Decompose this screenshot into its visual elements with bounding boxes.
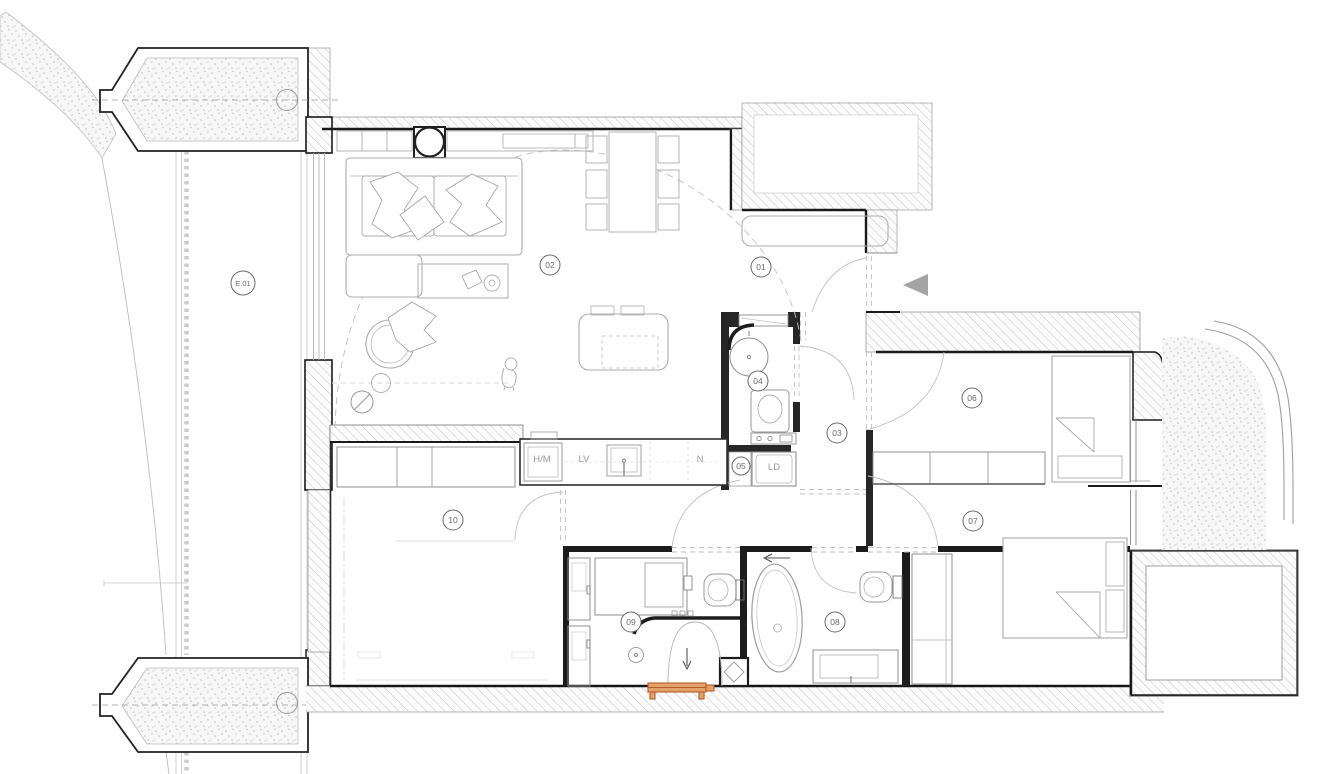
- pier-top: [92, 48, 338, 152]
- room-label-08: 08: [825, 612, 845, 632]
- svg-text:04: 04: [753, 376, 763, 386]
- bathtub: [749, 563, 805, 673]
- floor-drain-09: [629, 648, 644, 663]
- entry-door: [812, 256, 872, 312]
- room-07-furniture: [912, 538, 1127, 684]
- vanity-09: [595, 558, 687, 615]
- basin-04: [730, 338, 768, 376]
- label-ld: LD: [768, 462, 780, 473]
- room-label-04: 04: [748, 371, 768, 391]
- round-column: [415, 128, 444, 157]
- coffee-table: [418, 264, 508, 298]
- room-label-e01: E.01: [231, 271, 255, 295]
- shower-curtain-arc: [668, 622, 722, 686]
- window-living-west: [314, 153, 325, 360]
- entrance-arrow-icon: [903, 274, 928, 296]
- bath-09-fixtures: [568, 558, 748, 686]
- door-bath-08: [811, 548, 856, 594]
- garden: [1162, 321, 1293, 550]
- wardrobe-10: [337, 447, 515, 487]
- room-label-02: 02: [540, 255, 560, 275]
- sink-09: [645, 563, 683, 607]
- door-room-09: [672, 480, 740, 552]
- svg-text:06: 06: [967, 393, 977, 403]
- svg-text:08: 08: [830, 617, 840, 627]
- corridor-thresholds: [800, 312, 866, 494]
- svg-text:10: 10: [448, 515, 458, 525]
- room-label-01: 01: [751, 257, 771, 277]
- room-label-07: 07: [963, 511, 983, 531]
- wall-shelves: [337, 131, 593, 151]
- site-arc-lower: [166, 752, 169, 774]
- furniture: [337, 127, 1130, 699]
- label-lv: LV: [579, 454, 591, 465]
- dog-figure: [502, 358, 517, 391]
- label-hm: H/M: [533, 454, 551, 465]
- toilet-04: [751, 390, 789, 432]
- room-06-furniture: [873, 356, 1130, 484]
- bed-07: [1003, 538, 1127, 638]
- bed-06: [1052, 356, 1130, 482]
- door-room-07: [868, 476, 938, 552]
- label-n: N: [697, 454, 704, 465]
- dining-set: [586, 132, 679, 232]
- door-room-06: [866, 352, 944, 430]
- door-room-10: [515, 490, 566, 540]
- svg-text:01: 01: [756, 262, 766, 272]
- svg-text:E.01: E.01: [235, 279, 250, 288]
- door-bath-04: [795, 346, 855, 400]
- site-stipple-band: [0, 12, 116, 158]
- room-label-05: 05: [732, 457, 750, 475]
- svg-text:02: 02: [545, 260, 555, 270]
- room-label-06: 06: [962, 388, 982, 408]
- swivel-armchair: [366, 302, 436, 368]
- sideboard: [579, 306, 668, 370]
- svg-text:07: 07: [968, 516, 978, 526]
- closet-06: [873, 452, 1045, 484]
- svg-text:09: 09: [626, 617, 636, 627]
- pier-bottom: [92, 650, 338, 752]
- floor-plan-svg: E.01 01 02 03 04 05 06 07: [0, 0, 1322, 774]
- room-label-03: 03: [827, 423, 847, 443]
- patio: [1130, 550, 1298, 696]
- garden-stipple: [1162, 336, 1266, 550]
- floor-plan: E.01 01 02 03 04 05 06 07: [0, 0, 1322, 774]
- svg-text:05: 05: [736, 461, 746, 471]
- room-10-furniture: [337, 447, 548, 680]
- site-arc-outer: [102, 158, 166, 655]
- room-label-10: 10: [443, 510, 463, 530]
- window-east: [1131, 420, 1137, 545]
- toilet-08: [860, 572, 892, 602]
- arrow-down-icon: [683, 648, 691, 669]
- room-label-09: 09: [621, 612, 641, 632]
- floor-lamp: [351, 391, 373, 413]
- svg-text:03: 03: [832, 428, 842, 438]
- arrow-left-icon: [764, 554, 790, 562]
